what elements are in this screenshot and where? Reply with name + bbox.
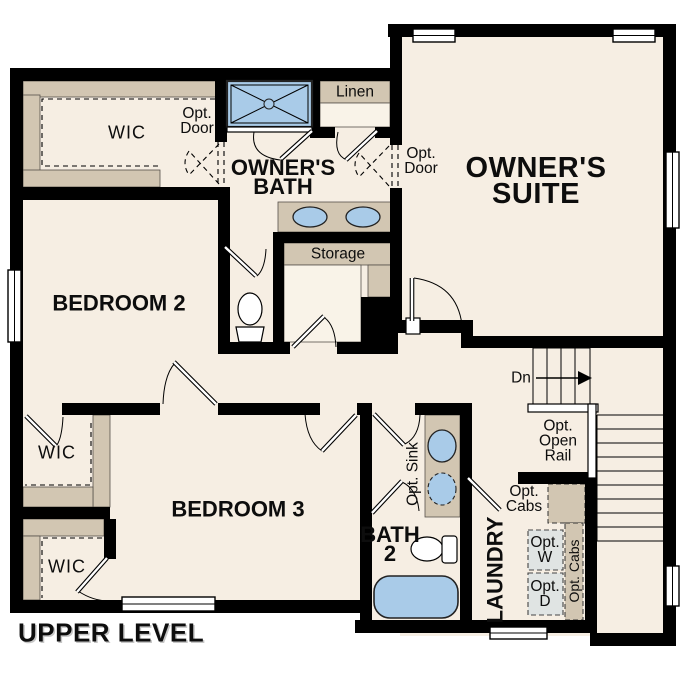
- laundry-label: LAUNDRY: [486, 517, 505, 624]
- shower: [227, 81, 312, 132]
- stairs-down-label: Dn: [511, 371, 531, 386]
- opt-cabs-laundry-label: Opt. Cabs: [506, 484, 542, 514]
- floor-plan-drawing: [0, 0, 687, 687]
- opt-sink-label: Opt. Sink: [406, 442, 421, 506]
- storage-label: Storage: [311, 247, 365, 262]
- open-rail-vertical: [588, 404, 596, 478]
- plan-title: UPPER LEVEL: [18, 618, 204, 649]
- owners-suite-label: OWNER'S SUITE: [466, 155, 607, 207]
- linen-label: Linen: [336, 85, 374, 100]
- shower-curb: [227, 127, 312, 132]
- bathtub: [374, 576, 458, 618]
- bedroom2-label: BEDROOM 2: [52, 294, 185, 313]
- bath2-label: BATH 2: [360, 525, 419, 563]
- opt-open-rail-label: Opt. Open Rail: [539, 419, 577, 464]
- opt-washer-label: Opt. W: [530, 535, 559, 565]
- opt-cabs-side-label: Opt. Cabs: [566, 539, 582, 602]
- toilet-owners: [236, 293, 264, 342]
- bath2-sink: [428, 430, 456, 462]
- wic-bedroom3-label: WIC: [48, 557, 86, 578]
- bedroom3-label: BEDROOM 3: [171, 500, 304, 519]
- opt-door-wic-label: Opt. Door: [180, 106, 214, 136]
- wic-bedroom2-label: WIC: [38, 443, 76, 464]
- wic-owners-label: WIC: [108, 123, 146, 144]
- opt-dryer-label: Opt. D: [530, 579, 559, 609]
- opt-door-suite-label: Opt. Door: [404, 146, 438, 176]
- owners-bath-label: OWNER'S BATH: [231, 158, 335, 196]
- bath2-optional-sink: [428, 473, 456, 505]
- floor-plan: WIC Opt. Door OWNER'S BATH Linen Opt. Do…: [0, 0, 687, 687]
